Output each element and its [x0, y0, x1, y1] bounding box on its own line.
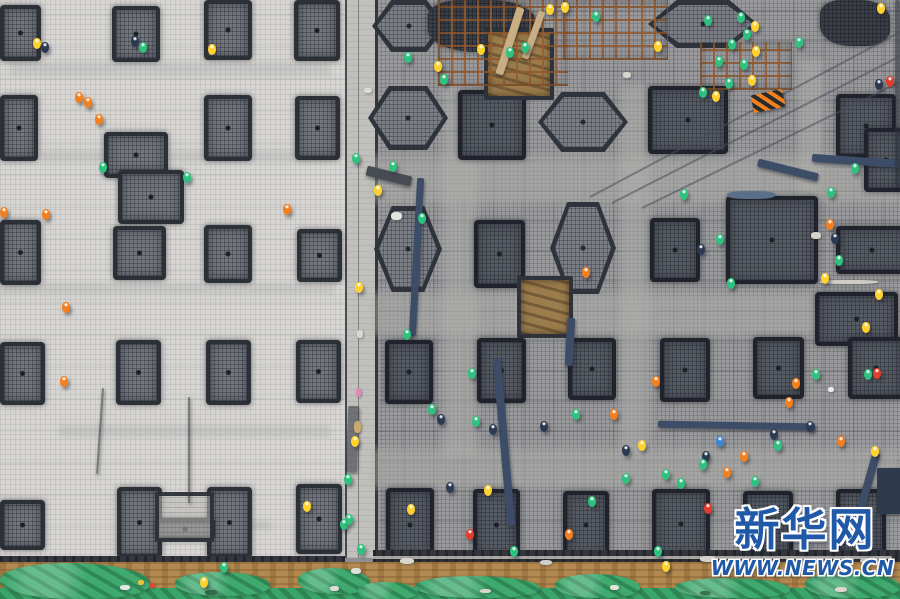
construction-worker	[389, 161, 397, 172]
construction-worker	[440, 74, 448, 85]
construction-worker	[484, 485, 492, 496]
construction-worker	[680, 189, 688, 200]
construction-worker	[662, 469, 670, 480]
construction-worker	[582, 267, 590, 278]
construction-worker	[806, 421, 814, 432]
construction-worker	[99, 162, 107, 173]
xinhua-watermark-brand: 新华网	[710, 506, 900, 553]
stain-smudge	[40, 150, 330, 162]
construction-worker	[466, 529, 474, 540]
construction-worker	[723, 467, 731, 478]
debris-item	[610, 585, 619, 590]
debris-item	[623, 72, 631, 78]
construction-worker	[752, 46, 760, 57]
construction-worker	[864, 369, 872, 380]
construction-worker	[837, 436, 845, 447]
construction-worker	[751, 476, 759, 487]
construction-worker	[489, 424, 497, 435]
pile-cap-pad	[0, 342, 45, 405]
rebar-pit	[563, 491, 609, 559]
green-tarp-patch	[175, 572, 270, 596]
construction-worker	[716, 436, 724, 447]
construction-worker	[728, 39, 736, 50]
construction-worker	[437, 414, 445, 425]
construction-worker	[748, 75, 756, 86]
construction-worker	[704, 15, 712, 26]
construction-worker	[510, 546, 518, 557]
rebar-pit	[836, 226, 900, 274]
pile-cap-pad	[206, 340, 251, 405]
construction-worker	[751, 21, 759, 32]
green-tarp-patch	[358, 582, 418, 599]
construction-worker	[139, 42, 147, 53]
pile-cap-pad	[0, 5, 41, 61]
pile-cap-pad	[296, 484, 342, 554]
xinhua-watermark-url: WWW.NEWS.CN	[700, 556, 900, 580]
pile-cap-pad	[204, 225, 252, 283]
debris-item	[356, 388, 361, 397]
debris-item	[540, 560, 552, 565]
construction-worker	[812, 369, 820, 380]
construction-worker	[785, 397, 793, 408]
construction-worker	[208, 44, 216, 55]
construction-worker	[131, 36, 139, 47]
construction-worker	[351, 436, 359, 447]
construction-worker	[572, 409, 580, 420]
debris-item	[354, 421, 361, 433]
construction-worker	[712, 91, 720, 102]
construction-worker	[740, 451, 748, 462]
construction-worker	[565, 529, 573, 540]
construction-worker	[540, 421, 548, 432]
debris-item	[828, 387, 834, 392]
construction-worker	[303, 501, 311, 512]
construction-worker	[75, 92, 83, 103]
green-tarp-patch	[0, 563, 150, 599]
stain-smudge	[10, 62, 330, 76]
construction-worker	[468, 368, 476, 379]
construction-worker	[42, 209, 50, 220]
debris-item	[400, 558, 414, 564]
construction-worker	[33, 38, 41, 49]
rebar-hexagon-mesh	[543, 97, 623, 147]
construction-worker	[0, 207, 8, 218]
pile-cap-pad	[116, 340, 161, 405]
construction-worker	[428, 404, 436, 415]
construction-worker	[699, 87, 707, 98]
rebar-pit	[660, 338, 710, 402]
construction-worker	[345, 514, 353, 525]
construction-worker	[654, 546, 662, 557]
construction-worker	[727, 278, 735, 289]
construction-worker	[374, 185, 382, 196]
construction-worker	[95, 114, 103, 125]
debris-item	[138, 580, 144, 585]
rebar-hexagon-mesh	[653, 5, 753, 43]
walkway-band	[620, 85, 650, 455]
construction-worker	[677, 478, 685, 489]
construction-worker	[434, 61, 442, 72]
construction-worker	[592, 11, 600, 22]
construction-worker	[873, 368, 881, 379]
construction-worker	[851, 163, 859, 174]
debris-item	[700, 591, 710, 595]
construction-worker	[835, 255, 843, 266]
construction-worker	[871, 446, 879, 457]
construction-worker	[477, 44, 485, 55]
construction-worker	[792, 378, 800, 389]
debris-item	[351, 568, 361, 574]
debris-item	[357, 330, 363, 338]
construction-worker	[875, 79, 883, 90]
construction-worker	[743, 29, 751, 40]
construction-worker	[737, 12, 745, 23]
construction-worker	[740, 59, 748, 70]
construction-worker	[506, 47, 514, 58]
pile-cap-pad	[0, 95, 38, 161]
construction-worker	[697, 244, 705, 255]
construction-worker	[355, 282, 363, 293]
construction-worker	[831, 233, 839, 244]
rebar-hexagon-mesh	[379, 211, 437, 287]
pile-cap-pad	[297, 229, 342, 282]
construction-worker	[352, 153, 360, 164]
construction-worker	[561, 2, 569, 13]
construction-worker	[875, 289, 883, 300]
construction-worker	[200, 577, 208, 588]
debris-item	[205, 590, 217, 595]
construction-worker	[610, 409, 618, 420]
pile-cap-pad	[118, 170, 184, 224]
construction-worker	[795, 37, 803, 48]
stain-smudge	[0, 283, 335, 295]
construction-worker	[344, 474, 352, 485]
construction-worker	[821, 273, 829, 284]
construction-worker	[183, 172, 191, 183]
construction-worker	[770, 429, 778, 440]
green-tarp-patch	[675, 578, 790, 598]
debris-item	[480, 589, 491, 593]
pile-cap-frame	[155, 492, 214, 542]
pile-cap-pad	[0, 500, 45, 550]
construction-worker	[725, 78, 733, 89]
construction-worker	[862, 322, 870, 333]
pile-cap-pad	[295, 96, 340, 160]
rebar-pit	[726, 196, 818, 284]
construction-worker	[404, 52, 412, 63]
rebar-pit	[650, 218, 700, 282]
construction-worker	[472, 416, 480, 427]
construction-worker	[662, 561, 670, 572]
construction-worker	[715, 56, 723, 67]
construction-worker	[546, 4, 554, 15]
pile-cap-pad	[294, 0, 340, 61]
debris-item	[120, 585, 130, 590]
construction-worker	[622, 445, 630, 456]
green-tarp-patch	[555, 574, 640, 598]
pile-cap-pad	[113, 226, 166, 280]
construction-worker	[357, 544, 365, 555]
pile-cap-pad	[204, 95, 252, 161]
rebar-pit	[753, 337, 804, 399]
concrete-slab-left-section	[0, 0, 345, 560]
construction-worker	[41, 42, 49, 53]
construction-worker	[418, 213, 426, 224]
debris-item	[811, 232, 821, 239]
debris-item	[364, 88, 372, 93]
construction-worker	[220, 562, 228, 573]
excavation-pit	[517, 276, 573, 338]
debris-item	[149, 583, 155, 588]
rebar-pit	[458, 90, 526, 160]
pile-cap-pad	[112, 6, 160, 62]
construction-worker	[521, 42, 529, 53]
rebar-pit	[385, 340, 433, 404]
steel-beam	[895, 0, 900, 185]
construction-worker	[652, 376, 660, 387]
construction-worker	[638, 440, 646, 451]
construction-worker	[877, 3, 885, 14]
steel-beam	[188, 397, 190, 503]
construction-worker	[403, 329, 411, 340]
scaffold-grid	[563, 0, 668, 60]
construction-worker	[446, 482, 454, 493]
construction-worker	[774, 440, 782, 451]
debris-item	[391, 212, 402, 220]
pile-cap-pad	[296, 340, 341, 403]
construction-worker	[654, 41, 662, 52]
rebar-hexagon-mesh	[373, 91, 443, 145]
construction-worker	[826, 219, 834, 230]
construction-worker	[622, 473, 630, 484]
aerial-construction-photo: 新华网 WWW.NEWS.CN	[0, 0, 900, 599]
green-tarp-patch	[415, 576, 540, 598]
pile-cap-pad	[0, 220, 41, 285]
debris-item	[835, 587, 847, 592]
construction-worker	[699, 459, 707, 470]
construction-worker	[283, 204, 291, 215]
rebar-pit	[568, 338, 616, 400]
construction-worker	[886, 76, 894, 87]
debris-item	[727, 191, 775, 199]
construction-worker	[60, 376, 68, 387]
debris-item	[330, 586, 339, 591]
construction-worker	[827, 187, 835, 198]
construction-worker	[84, 97, 92, 108]
construction-worker	[588, 496, 596, 507]
construction-worker	[407, 504, 415, 515]
construction-worker	[716, 234, 724, 245]
construction-worker	[62, 302, 70, 313]
